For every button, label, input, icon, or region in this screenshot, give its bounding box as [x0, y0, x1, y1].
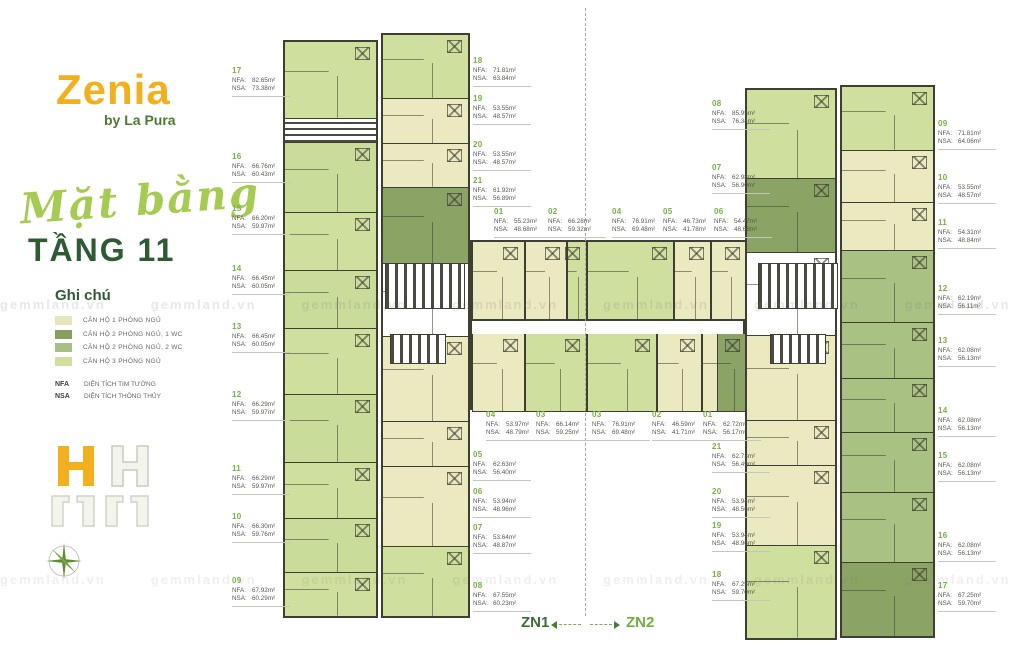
plan-unit-block [842, 202, 933, 250]
unit-number: 18 [712, 570, 770, 579]
nsa-value: 73.38m² [252, 85, 275, 93]
nsa-value: 56.90m² [732, 182, 755, 190]
nfa-value: 66.45m² [252, 333, 275, 341]
unit-nfa-row: NFA:71.81m² [473, 67, 531, 75]
unit-nfa-row: NFA:67.25m² [938, 592, 996, 600]
unit-nsa-row: NSA:56.13m² [938, 550, 996, 558]
unit-nsa-row: NSA:56.13m² [938, 425, 996, 433]
plan-unit-block [567, 242, 587, 320]
unit-label-zn2-17: 17NFA:67.25m²NSA:59.70m² [938, 581, 996, 612]
unit-nsa-row: NSA:60.43m² [232, 171, 290, 179]
nsa-prefix: NSA: [712, 461, 728, 469]
nsa-prefix: NSA: [712, 118, 728, 126]
nsa-value: 56.13m² [958, 550, 981, 558]
plan-unit-block [383, 546, 468, 616]
unit-nfa-row: NFA:53.94m² [712, 498, 770, 506]
unit-nfa-row: NFA:66.28m² [548, 218, 606, 226]
nfa-value: 62.08m² [958, 347, 981, 355]
unit-nsa-row: NSA:48.68m² [714, 226, 772, 234]
nfa-value: 67.25m² [732, 581, 755, 589]
unit-nfa-row: NFA:46.59m² [652, 421, 710, 429]
unit-number: 06 [714, 207, 772, 216]
unit-number: 01 [494, 207, 552, 216]
nfa-value: 67.25m² [958, 592, 981, 600]
plan-unit-block [383, 35, 468, 98]
unit-label-zn2-12: 12NFA:62.19m²NSA:56.11m² [938, 284, 996, 315]
nfa-prefix: NFA: [473, 461, 489, 469]
unit-nsa-row: NSA:56.90m² [712, 182, 770, 190]
unit-label-zn2-04: 04NFA:76.91m²NSA:69.48m² [612, 207, 670, 238]
unit-number: 05 [663, 207, 721, 216]
unit-number: 21 [712, 442, 770, 451]
unit-nfa-row: NFA:71.81m² [938, 130, 996, 138]
nsa-value: 69.48m² [632, 226, 655, 234]
stair-core [285, 118, 376, 142]
unit-label-zn1-20: 20NFA:53.55m²NSA:48.57m² [473, 140, 531, 171]
unit-label-zn2-21: 21NFA:62.73m²NSA:56.49m² [712, 442, 770, 473]
plan-unit-block [285, 572, 376, 616]
nfa-value: 53.94m² [732, 532, 755, 540]
unit-label-zn2-18: 18NFA:67.25m²NSA:59.70m² [712, 570, 770, 601]
plan-unit-block [285, 270, 376, 328]
brand-logo: Zenia [56, 66, 171, 114]
zn1-right-wing [381, 33, 470, 618]
nfa-value: 62.08m² [958, 462, 981, 470]
unit-nsa-row: NSA:48.57m² [938, 192, 996, 200]
unit-nsa-row: NSA:59.97m² [232, 409, 290, 417]
nsa-definition: DIỆN TÍCH THÔNG THỦY [84, 393, 161, 400]
nsa-prefix: NSA: [548, 226, 564, 234]
zone-divider-line [585, 8, 586, 616]
nsa-value: 48.87m² [493, 542, 516, 550]
plan-unit-block [842, 492, 933, 562]
unit-number: 07 [712, 163, 770, 172]
unit-number: 12 [232, 390, 290, 399]
nsa-value: 59.25m² [556, 429, 579, 437]
nfa-value: 67.55m² [493, 592, 516, 600]
nsa-value: 56.13m² [958, 470, 981, 478]
plan-unit-block [472, 242, 525, 320]
unit-nsa-row: NSA:56.49m² [712, 461, 770, 469]
legend-item-label: CĂN HỘ 2 PHÒNG NGỦ, 1 WC [83, 331, 183, 338]
page-title-floor: TẦNG 11 [28, 232, 175, 269]
unit-label-zn2-01: 01NFA:62.72m²NSA:56.17m² [703, 410, 761, 441]
unit-label-zn1-14: 14NFA:66.45m²NSA:60.05m² [232, 264, 290, 295]
unit-nsa-row: NSA:60.23m² [473, 600, 531, 608]
unit-label-zn2-19: 19NFA:53.94m²NSA:48.96m² [712, 521, 770, 552]
unit-label-zn1-12: 12NFA:66.29m²NSA:59.97m² [232, 390, 290, 421]
nfa-value: 76.91m² [632, 218, 655, 226]
nfa-prefix: NFA: [473, 151, 489, 159]
nsa-prefix: NSA: [938, 470, 954, 478]
h-mark-yellow-icon [58, 446, 94, 486]
zn1-arrow-icon [551, 621, 557, 629]
elevator-core [390, 334, 446, 364]
nsa-prefix: NSA: [232, 171, 248, 179]
nsa-value: 41.78m² [683, 226, 706, 234]
nfa-value: 46.73m² [683, 218, 706, 226]
unit-number: 04 [612, 207, 670, 216]
nsa-value: 59.97m² [252, 409, 275, 417]
unit-nfa-row: NFA:66.76m² [232, 163, 290, 171]
zn1-dash-line [559, 624, 581, 625]
legend-swatch-3br [55, 357, 72, 366]
legend-title: Ghi chú [55, 287, 255, 304]
plan-unit-block [285, 328, 376, 394]
nsa-value: 56.13m² [958, 355, 981, 363]
unit-label-zn2-03: 03NFA:76.91m²NSA:69.48m² [592, 410, 650, 441]
nsa-value: 48.68m² [734, 226, 757, 234]
nfa-value: 67.92m² [252, 587, 275, 595]
nfa-prefix: NFA: [938, 184, 954, 192]
unit-number: 03 [592, 410, 650, 419]
unit-nfa-row: NFA:54.47m² [714, 218, 772, 226]
legend-swatch-2br1wc [55, 330, 72, 339]
nfa-value: 71.81m² [958, 130, 981, 138]
nsa-value: 63.84m² [493, 75, 516, 83]
nsa-value: 60.05m² [252, 341, 275, 349]
unit-number: 13 [232, 322, 290, 331]
unit-label-zn2-20: 20NFA:53.94m²NSA:48.56m² [712, 487, 770, 518]
unit-number: 02 [652, 410, 710, 419]
unit-nfa-row: NFA:62.08m² [938, 462, 996, 470]
nfa-prefix: NFA: [232, 275, 248, 283]
plan-unit-block [285, 462, 376, 518]
nfa-value: 53.55m² [493, 151, 516, 159]
unit-label-zn2-16: 16NFA:62.08m²NSA:56.13m² [938, 531, 996, 562]
unit-nfa-row: NFA:54.31m² [938, 229, 996, 237]
nfa-value: 85.95m² [732, 110, 755, 118]
unit-nfa-row: NFA:53.94m² [712, 532, 770, 540]
nfa-prefix: NFA: [232, 587, 248, 595]
unit-label-zn2-14: 14NFA:62.08m²NSA:56.13m² [938, 406, 996, 437]
nsa-value: 56.13m² [958, 425, 981, 433]
unit-nsa-row: NSA:76.34m² [712, 118, 770, 126]
unit-number: 07 [473, 523, 531, 532]
nfa-prefix: NFA: [938, 462, 954, 470]
nsa-prefix: NSA: [714, 226, 730, 234]
unit-nsa-row: NSA:59.25m² [536, 429, 594, 437]
nfa-prefix: NFA: [232, 401, 248, 409]
nfa-prefix: NFA: [473, 67, 489, 75]
unit-label-zn1-05: 05NFA:62.63m²NSA:56.40m² [473, 450, 531, 481]
legend-item-label: CĂN HỘ 2 PHÒNG NGỦ, 2 WC [83, 344, 183, 351]
nfa-prefix: NFA: [938, 592, 954, 600]
legend-note-nfa: NFA DIỆN TÍCH TIM TƯỜNG [55, 378, 255, 390]
zn1-left-wing [283, 40, 378, 618]
nfa-value: 55.23m² [514, 218, 537, 226]
elevator-core [758, 263, 838, 309]
legend-item-1br: CĂN HỘ 1 PHÒNG NGỦ [55, 314, 255, 328]
nsa-value: 59.32m² [568, 226, 591, 234]
nsa-value: 59.70m² [732, 589, 755, 597]
nfa-prefix: NFA: [232, 163, 248, 171]
unit-label-zn2-07: 07NFA:62.98m²NSA:56.90m² [712, 163, 770, 194]
unit-nfa-row: NFA:46.73m² [663, 218, 721, 226]
unit-nsa-row: NSA:59.70m² [938, 600, 996, 608]
nsa-prefix: NSA: [473, 195, 489, 203]
nsa-prefix: NSA: [473, 113, 489, 121]
unit-nfa-row: NFA:62.08m² [938, 347, 996, 355]
unit-nsa-row: NSA:59.70m² [712, 589, 770, 597]
unit-nfa-row: NFA:67.92m² [232, 587, 290, 595]
plan-unit-block [383, 143, 468, 187]
nsa-value: 48.57m² [493, 159, 516, 167]
unit-nsa-row: NSA:73.38m² [232, 85, 290, 93]
legend-item-2br2wc: CĂN HỘ 2 PHÒNG NGỦ, 2 WC [55, 341, 255, 355]
unit-label-zn1-11: 11NFA:66.29m²NSA:59.97m² [232, 464, 290, 495]
nfa-prefix: NFA: [494, 218, 510, 226]
nsa-value: 56.40m² [493, 469, 516, 477]
nsa-prefix: NSA: [712, 540, 728, 548]
unit-label-zn1-19: 19NFA:53.55m²NSA:48.57m² [473, 94, 531, 125]
nsa-prefix: NSA: [473, 506, 489, 514]
nfa-prefix: NFA: [232, 523, 248, 531]
unit-nfa-row: NFA:66.29m² [232, 475, 290, 483]
unit-label-zn1-03: 03NFA:66.14m²NSA:59.25m² [536, 410, 594, 441]
nsa-prefix: NSA: [938, 600, 954, 608]
nsa-prefix: NSA: [938, 303, 954, 311]
nsa-value: 41.71m² [672, 429, 695, 437]
plan-unit-block [525, 334, 587, 412]
unit-nsa-row: NSA:48.96m² [473, 506, 531, 514]
unit-nsa-row: NSA:59.97m² [232, 483, 290, 491]
unit-label-zn1-08: 08NFA:67.55m²NSA:60.23m² [473, 581, 531, 612]
unit-nfa-row: NFA:55.23m² [494, 218, 552, 226]
nsa-prefix: NSA: [473, 542, 489, 550]
unit-label-zn2-15: 15NFA:62.08m²NSA:56.13m² [938, 451, 996, 482]
unit-label-zn1-10: 10NFA:66.30m²NSA:59.76m² [232, 512, 290, 543]
unit-nfa-row: NFA:62.98m² [712, 174, 770, 182]
unit-nsa-row: NSA:41.71m² [652, 429, 710, 437]
nfa-value: 53.94m² [732, 498, 755, 506]
nfa-value: 66.76m² [252, 163, 275, 171]
nfa-prefix: NFA: [473, 105, 489, 113]
nsa-value: 64.06m² [958, 138, 981, 146]
unit-nfa-row: NFA:76.91m² [592, 421, 650, 429]
nsa-value: 48.57m² [493, 113, 516, 121]
nsa-value: 60.23m² [493, 600, 516, 608]
nfa-prefix: NFA: [712, 110, 728, 118]
nfa-prefix: NFA: [712, 532, 728, 540]
central-cluster [470, 240, 745, 410]
unit-nfa-row: NFA:85.95m² [712, 110, 770, 118]
unit-nsa-row: NSA:69.48m² [612, 226, 670, 234]
nfa-value: 66.30m² [252, 523, 275, 531]
nfa-prefix: NFA: [938, 417, 954, 425]
nfa-prefix: NFA: [232, 215, 248, 223]
unit-nfa-row: NFA:53.94m² [473, 498, 531, 506]
nfa-value: 62.08m² [958, 542, 981, 550]
unit-number: 12 [938, 284, 996, 293]
unit-number: 19 [712, 521, 770, 530]
nsa-prefix: NSA: [663, 226, 679, 234]
unit-nsa-row: NSA:56.89m² [473, 195, 531, 203]
unit-nsa-row: NSA:48.68m² [494, 226, 552, 234]
nfa-value: 62.72m² [723, 421, 746, 429]
unit-number: 14 [938, 406, 996, 415]
nsa-prefix: NSA: [938, 355, 954, 363]
unit-number: 11 [232, 464, 290, 473]
legend-item-2br1wc: CĂN HỘ 2 PHÒNG NGỦ, 1 WC [55, 328, 255, 342]
nsa-value: 56.11m² [958, 303, 981, 311]
unit-nfa-row: NFA:62.19m² [938, 295, 996, 303]
unit-nsa-row: NSA:48.84m² [938, 237, 996, 245]
unit-number: 15 [938, 451, 996, 460]
nfa-value: 53.97m² [506, 421, 529, 429]
unit-nsa-row: NSA:63.84m² [473, 75, 531, 83]
unit-number: 21 [473, 176, 531, 185]
nsa-value: 59.97m² [252, 483, 275, 491]
unit-label-zn2-11: 11NFA:54.31m²NSA:48.84m² [938, 218, 996, 249]
unit-label-zn2-08: 08NFA:85.95m²NSA:76.34m² [712, 99, 770, 130]
unit-nsa-row: NSA:60.29m² [232, 595, 290, 603]
nfa-prefix: NFA: [232, 333, 248, 341]
nfa-value: 53.55m² [958, 184, 981, 192]
unit-nfa-row: NFA:66.14m² [536, 421, 594, 429]
nfa-value: 53.55m² [493, 105, 516, 113]
nsa-value: 48.79m² [506, 429, 529, 437]
unit-number: 06 [473, 487, 531, 496]
unit-number: 03 [536, 410, 594, 419]
unit-number: 20 [473, 140, 531, 149]
plan-unit-block [587, 242, 674, 320]
legend-item-label: CĂN HỘ 1 PHÒNG NGỦ [83, 317, 161, 324]
nfa-value: 62.08m² [958, 417, 981, 425]
building-shape-icon [48, 444, 166, 533]
unit-nfa-row: NFA:53.55m² [473, 105, 531, 113]
nsa-prefix: NSA: [938, 425, 954, 433]
nfa-prefix: NFA: [938, 229, 954, 237]
unit-label-zn2-02: 02NFA:46.59m²NSA:41.71m² [652, 410, 710, 441]
nfa-value: 82.65m² [252, 77, 275, 85]
plan-unit-block [285, 212, 376, 270]
nsa-prefix: NSA: [938, 138, 954, 146]
nfa-prefix: NFA: [938, 347, 954, 355]
nfa-prefix: NFA: [938, 542, 954, 550]
unit-number: 16 [232, 152, 290, 161]
nsa-value: 60.29m² [252, 595, 275, 603]
unit-nsa-row: NSA:48.96m² [712, 540, 770, 548]
nfa-value: 46.59m² [672, 421, 695, 429]
unit-number: 09 [232, 576, 290, 585]
nfa-definition: DIỆN TÍCH TIM TƯỜNG [84, 381, 156, 388]
nsa-abbr: NSA [55, 393, 75, 400]
zn2-dash-line [590, 624, 612, 625]
nsa-value: 59.70m² [958, 600, 981, 608]
unit-nsa-row: NSA:48.87m² [473, 542, 531, 550]
unit-nsa-row: NSA:59.32m² [548, 226, 606, 234]
nsa-prefix: NSA: [938, 192, 954, 200]
legend-swatch-1br [55, 316, 72, 325]
unit-label-zn1-06: 06NFA:53.94m²NSA:48.96m² [473, 487, 531, 518]
unit-number: 16 [938, 531, 996, 540]
nsa-prefix: NSA: [232, 595, 248, 603]
unit-nsa-row: NSA:60.05m² [232, 341, 290, 349]
nfa-prefix: NFA: [938, 295, 954, 303]
nsa-value: 69.48m² [612, 429, 635, 437]
nsa-prefix: NSA: [938, 550, 954, 558]
unit-label-zn1-01: 01NFA:55.23m²NSA:48.68m² [494, 207, 552, 238]
nsa-prefix: NSA: [232, 283, 248, 291]
unit-nfa-row: NFA:62.08m² [938, 417, 996, 425]
nsa-prefix: NSA: [232, 483, 248, 491]
nsa-value: 56.17m² [723, 429, 746, 437]
unit-label-zn2-13: 13NFA:62.08m²NSA:56.13m² [938, 336, 996, 367]
nsa-prefix: NSA: [592, 429, 608, 437]
nsa-value: 48.84m² [958, 237, 981, 245]
unit-label-zn1-13: 13NFA:66.45m²NSA:60.05m² [232, 322, 290, 353]
unit-nfa-row: NFA:67.25m² [712, 581, 770, 589]
floorplan-poster: { "branding": {"name": "Zenia", "byline"… [0, 0, 1024, 662]
nfa-prefix: NFA: [712, 498, 728, 506]
legend-item-3br: CĂN HỘ 3 PHÒNG NGỦ [55, 355, 255, 369]
plan-unit-block [717, 334, 747, 412]
nfa-value: 66.28m² [568, 218, 591, 226]
unit-label-zn1-15: 15NFA:66.20m²NSA:59.97m² [232, 204, 290, 235]
unit-number: 10 [938, 173, 996, 182]
unit-label-zn1-17: 17NFA:82.65m²NSA:73.38m² [232, 66, 290, 97]
unit-number: 05 [473, 450, 531, 459]
plan-unit-block [842, 150, 933, 202]
nfa-prefix: NFA: [473, 592, 489, 600]
unit-nfa-row: NFA:61.92m² [473, 187, 531, 195]
unit-number: 19 [473, 94, 531, 103]
plan-unit-block [587, 334, 657, 412]
unit-nsa-row: NSA:56.13m² [938, 470, 996, 478]
nsa-prefix: NSA: [232, 341, 248, 349]
zone-label-zn1: ZN1 [521, 614, 549, 631]
nsa-value: 59.76m² [252, 531, 275, 539]
unit-nfa-row: NFA:76.91m² [612, 218, 670, 226]
plan-unit-block [674, 242, 711, 320]
nsa-value: 48.57m² [958, 192, 981, 200]
unit-nfa-row: NFA:62.63m² [473, 461, 531, 469]
nfa-value: 71.81m² [493, 67, 516, 75]
zone-label-zn2: ZN2 [626, 614, 654, 631]
nsa-prefix: NSA: [938, 237, 954, 245]
unit-nfa-row: NFA:62.08m² [938, 542, 996, 550]
brand-byline: by La Pura [104, 112, 176, 128]
unit-nsa-row: NSA:59.76m² [232, 531, 290, 539]
nsa-prefix: NSA: [473, 159, 489, 167]
nsa-prefix: NSA: [652, 429, 668, 437]
nfa-value: 53.64m² [493, 534, 516, 542]
elevator-core [770, 334, 826, 364]
plan-unit-block [285, 142, 376, 212]
nsa-prefix: NSA: [232, 85, 248, 93]
unit-nfa-row: NFA:53.55m² [473, 151, 531, 159]
nfa-value: 62.98m² [732, 174, 755, 182]
unit-nfa-row: NFA:66.20m² [232, 215, 290, 223]
zn2-right-wing [840, 85, 935, 638]
unit-number: 15 [232, 204, 290, 213]
unit-number: 13 [938, 336, 996, 345]
nfa-prefix: NFA: [232, 475, 248, 483]
nsa-value: 48.96m² [493, 506, 516, 514]
unit-nfa-row: NFA:62.73m² [712, 453, 770, 461]
nfa-value: 62.73m² [732, 453, 755, 461]
unit-label-zn1-02: 02NFA:66.28m²NSA:59.32m² [548, 207, 606, 238]
unit-nsa-row: NSA:59.97m² [232, 223, 290, 231]
nsa-prefix: NSA: [612, 226, 628, 234]
plan-unit-block [842, 432, 933, 492]
nsa-prefix: NSA: [494, 226, 510, 234]
legend-item-label: CĂN HỘ 3 PHÒNG NGỦ [83, 358, 161, 365]
unit-number: 02 [548, 207, 606, 216]
nsa-prefix: NSA: [232, 409, 248, 417]
unit-nfa-row: NFA:53.64m² [473, 534, 531, 542]
